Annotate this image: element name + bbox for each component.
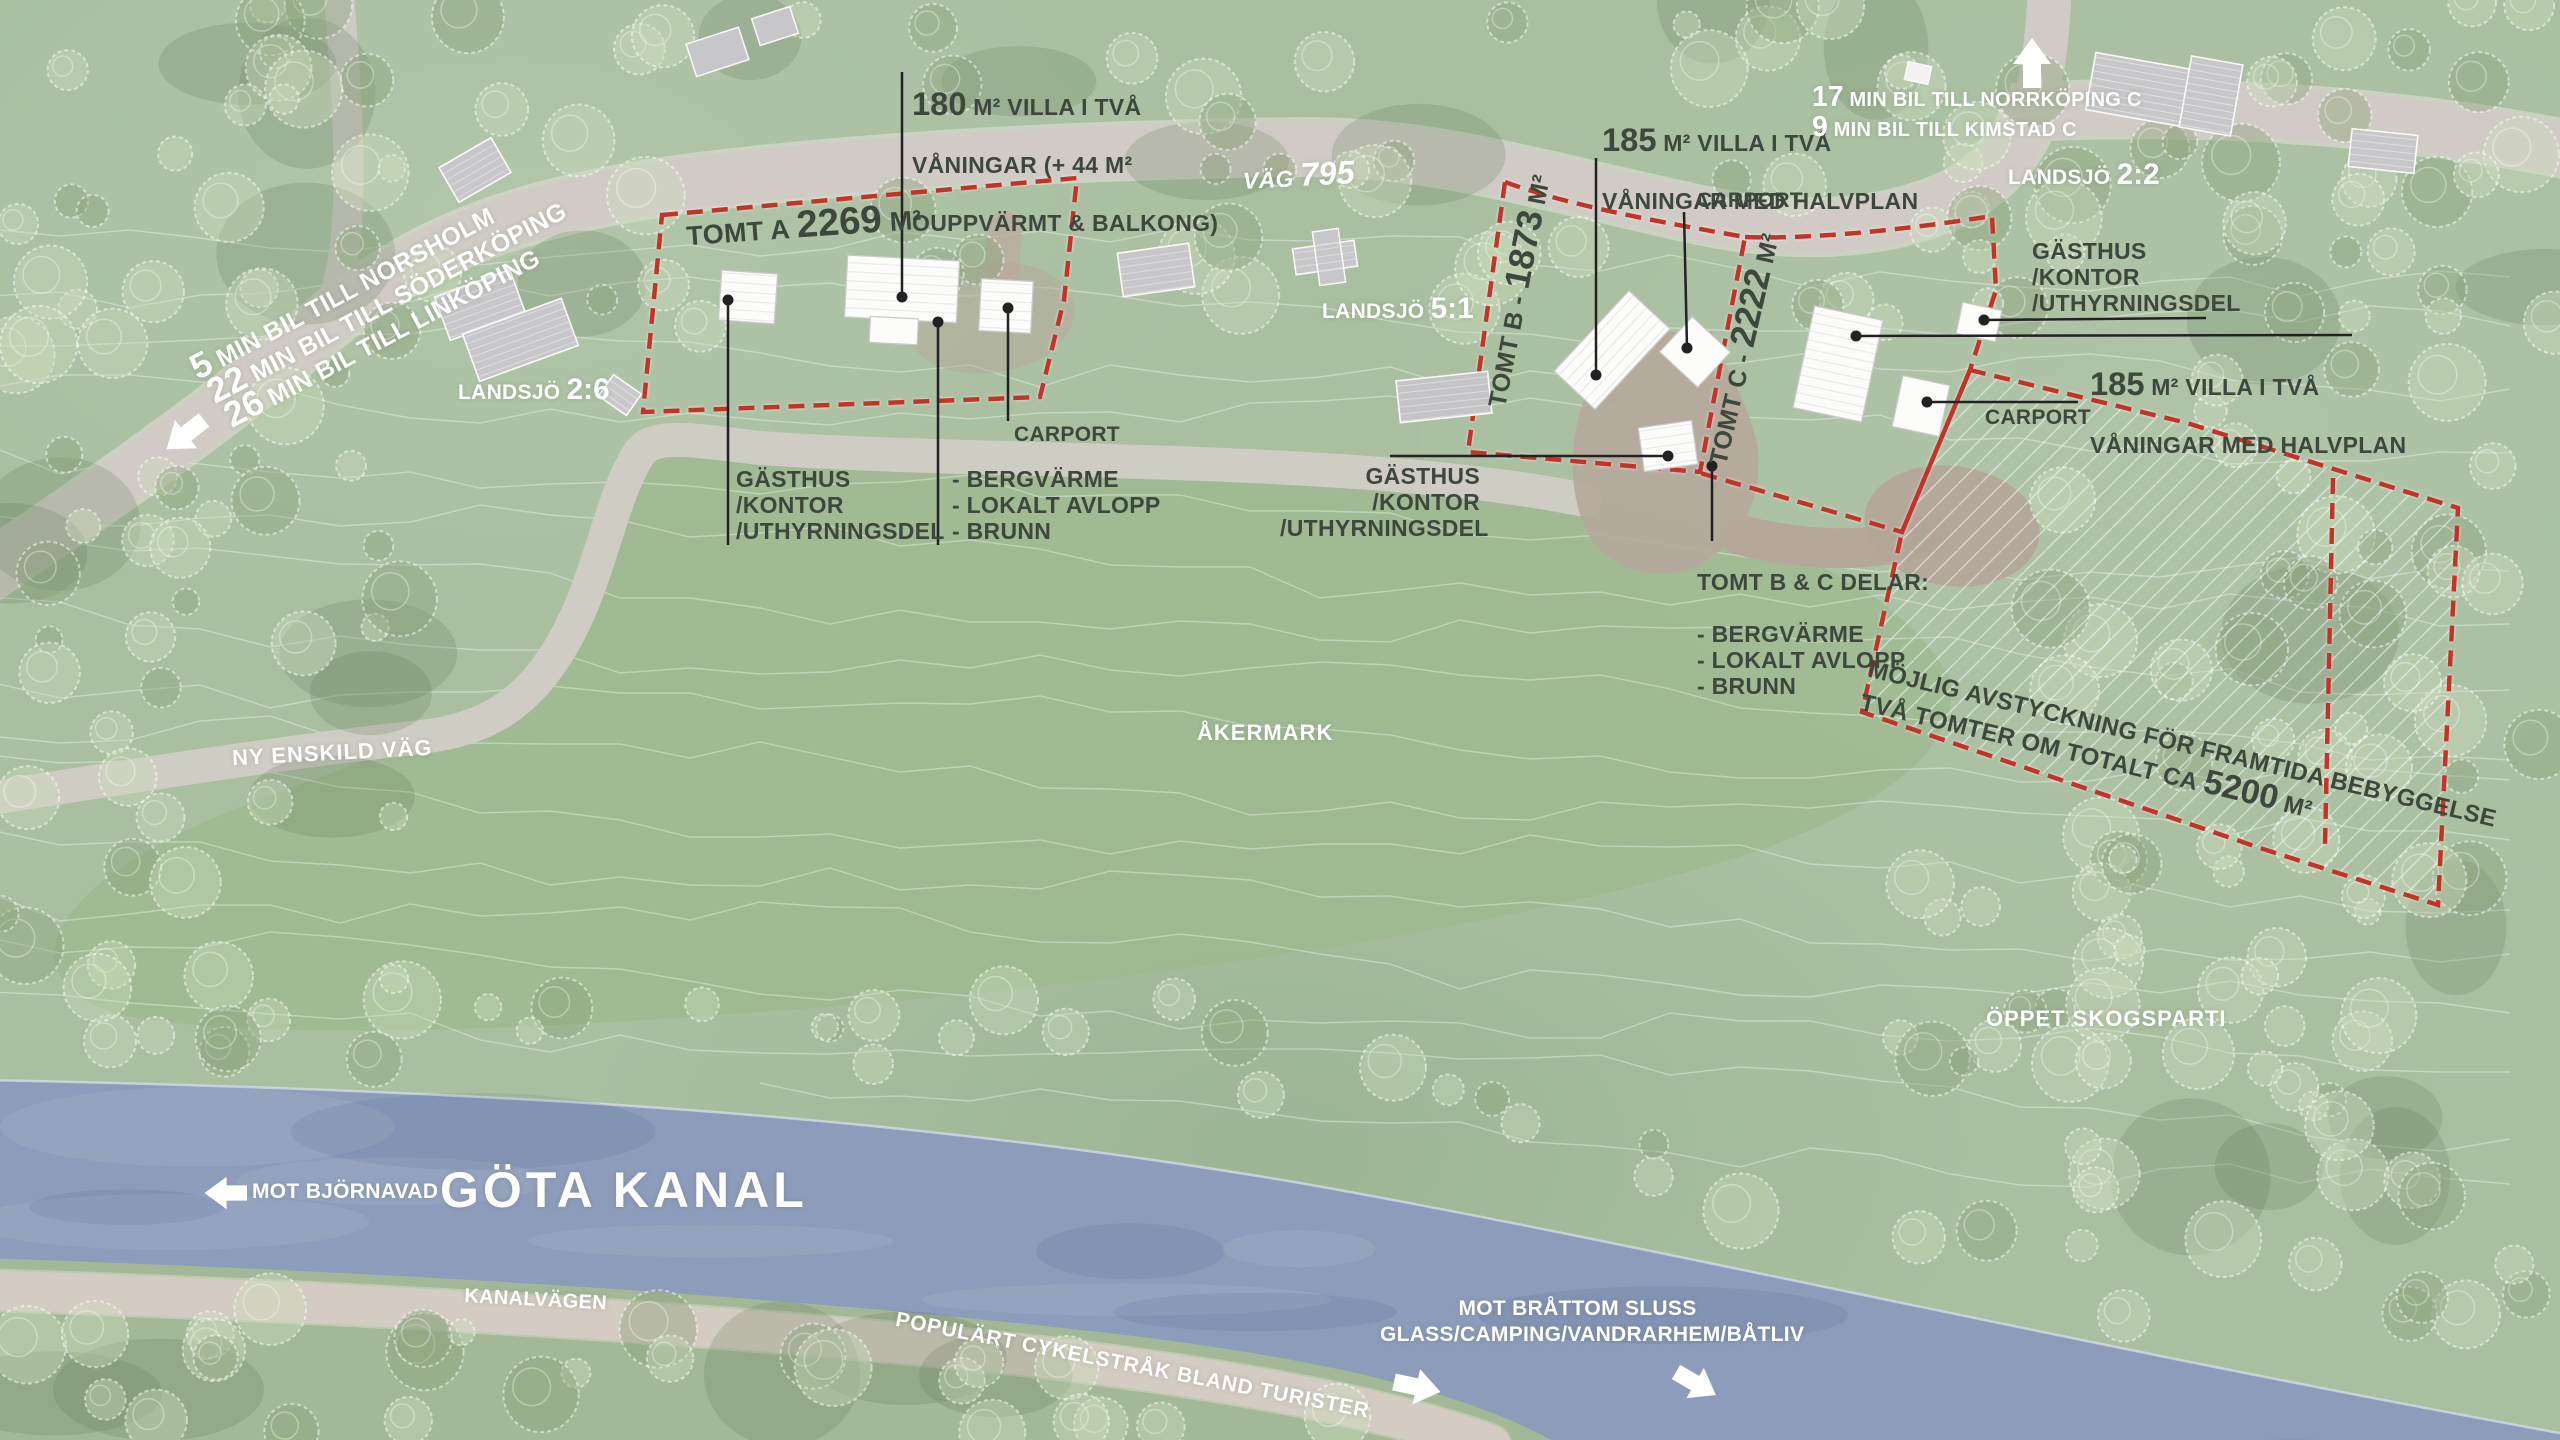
villa-b-size: 185 (1602, 121, 1657, 158)
tree-icon (1950, 1047, 1978, 1075)
tomt-c-unit: M² (1751, 231, 1785, 266)
travel-ne-num1: 17 (1812, 81, 1844, 113)
landsjo22-number: 2:2 (2117, 158, 2160, 191)
site-plan: 180 M² VILLA I TVÅ VÅNINGAR (+ 44 M² OUP… (0, 0, 2560, 1440)
landsjo22-name: LANDSJÖ (2008, 166, 2110, 189)
water-ripple (29, 1189, 224, 1224)
tree-icon (2066, 1230, 2097, 1261)
parcel-landsjo-2-2-label: LANDSJÖ 2:2 (2008, 158, 2160, 192)
tree-icon (2265, 1006, 2305, 1046)
tomt-a-unit: M² (889, 205, 923, 237)
water-ripple (1036, 1223, 1224, 1279)
tree-icon (66, 509, 100, 543)
tree-icon (853, 1044, 893, 1084)
villa-c-label: 185 M² VILLA I TVÅ VÅNINGAR MED HALVPLAN (2090, 340, 2406, 489)
tree-icon (1634, 1157, 1672, 1195)
road-vag795-label: VÄG 795 (1240, 127, 1355, 196)
utilities-a-label: - BERGVÄRME - LOKALT AVLOPP - BRUNN (952, 466, 1161, 544)
villa-c-size: 185 (2090, 365, 2145, 402)
tomt-a-prefix: TOMT A (685, 214, 790, 251)
tree-icon (46, 437, 82, 473)
water-ripple (291, 1093, 656, 1170)
area-skogsparti-label: ÖPPET SKOGSPARTI (1986, 1006, 2227, 1031)
tree-icon (2241, 958, 2278, 995)
tree-icon (2248, 1052, 2282, 1086)
water-ripple (528, 1224, 893, 1257)
villa-a-size: 180 (912, 85, 967, 122)
tree-icon (158, 137, 192, 171)
villa-c-line2: VÅNINGAR MED HALVPLAN (2090, 431, 2406, 460)
tree-icon (939, 1020, 974, 1055)
landsjo51-number: 5:1 (1431, 292, 1474, 325)
villa-a-line2: VÅNINGAR (+ 44 M² (912, 151, 1218, 180)
travel-ne-rest2: MIN BIL TILL KIMSTAD C (1828, 119, 2077, 141)
canal-name-label: GÖTA KANAL (440, 1162, 808, 1219)
travel-ne-num2: 9 (1812, 111, 1828, 143)
parcel-landsjo-5-1-label: LANDSJÖ 5:1 (1322, 292, 1474, 326)
villa-c-rest1: M² VILLA I TVÅ (2145, 374, 2320, 400)
tree-icon (0, 204, 38, 244)
tree-icon (475, 994, 501, 1020)
tree-icon (380, 965, 408, 993)
tree-icon (2445, 759, 2479, 793)
tree-icon (2065, 1128, 2101, 1164)
canal-east-label: MOT BRÅTTOM SLUSS GLASS/CAMPING/VANDRARH… (1380, 1296, 1775, 1348)
tree-icon (1963, 240, 1996, 273)
tree-icon (2109, 846, 2137, 874)
guesthouse-a-label: GÄSTHUS /KONTOR /UTHYRNINGSDEL (736, 466, 945, 544)
vag795-number: 795 (1299, 153, 1355, 193)
water-ripple (922, 1284, 1332, 1316)
tomt-b-unit: M² (1523, 172, 1556, 207)
tree-icon (1433, 1074, 1464, 1105)
tree-icon (269, 84, 298, 113)
villa-a-rest1: M² VILLA I TVÅ (967, 94, 1142, 120)
parcel-landsjo-2-6-label: LANDSJÖ 2:6 (458, 373, 610, 407)
tree-icon (2339, 301, 2370, 332)
carport-c-label: CARPORT (1985, 406, 2091, 430)
tree-icon (2495, 1245, 2533, 1283)
landsjo26-name: LANDSJÖ (458, 381, 560, 404)
tree-icon (2330, 237, 2361, 268)
tree-icon (137, 1017, 174, 1054)
area-akermark-label: ÅKERMARK (1197, 720, 1333, 745)
tree-icon (77, 195, 109, 227)
utilities-bc-title: TOMT B & C DELAR: (1697, 569, 1929, 595)
tree-icon (141, 668, 181, 708)
tree-icon (1475, 1082, 1509, 1116)
tree-icon (385, 1397, 432, 1440)
landsjo51-name: LANDSJÖ (1322, 300, 1424, 323)
travel-ne-line2: 9 MIN BIL TILL KIMSTAD C (1812, 114, 2142, 144)
carport-c (1892, 376, 1950, 437)
tomt-a-area: 2269 (795, 198, 883, 247)
water-ripple (1222, 1231, 1376, 1268)
tree-icon (173, 589, 199, 615)
tree-icon (2426, 298, 2462, 334)
landsjo26-number: 2:6 (567, 373, 610, 406)
villa-a-line1: 180 M² VILLA I TVÅ (912, 89, 1218, 122)
tree-icon (587, 285, 617, 315)
travel-ne-rest1: MIN BIL TILL NORRKÖPING C (1844, 89, 2142, 111)
canal-west-label: MOT BJÖRNAVAD (252, 1180, 438, 1204)
travel-ne-line1: 17 MIN BIL TILL NORRKÖPING C (1812, 84, 2142, 114)
villa-a-line3: OUPPVÄRMT & BALKONG) (912, 209, 1218, 238)
guesthouse-b-label: GÄSTHUS /KONTOR /UTHYRNINGSDEL (1280, 463, 1480, 541)
travel-northeast-label: 17 MIN BIL TILL NORRKÖPING C 9 MIN BIL T… (1812, 84, 2142, 144)
tree-icon (812, 1014, 838, 1040)
guesthouse-c-label: GÄSTHUS /KONTOR /UTHYRNINGSDEL (2032, 238, 2241, 316)
villa-b-rest1: M² VILLA I TVÅ (1657, 130, 1832, 156)
tree-icon (1640, 1130, 1669, 1159)
tree-icon (1961, 887, 2000, 926)
villa-c-line1: 185 M² VILLA I TVÅ (2090, 369, 2406, 402)
vag795-name: VÄG (1242, 165, 1294, 194)
guesthouse-b (1638, 420, 1698, 471)
tree-icon (517, 1017, 543, 1043)
carport-a-label: CARPORT (1014, 423, 1120, 447)
tree-icon (336, 451, 366, 481)
tree-icon (364, 531, 393, 560)
tree-icon (685, 988, 719, 1022)
tree-icon (1137, 1402, 1185, 1440)
tree-icon (1501, 1104, 1539, 1142)
tree-icon (2114, 935, 2144, 965)
tree-icon (380, 803, 407, 830)
future-line2-unit: M² (2281, 791, 2315, 824)
tree-icon (432, 0, 504, 53)
villa-a-label: 180 M² VILLA I TVÅ VÅNINGAR (+ 44 M² OUP… (912, 60, 1218, 267)
tree-icon (0, 1306, 66, 1383)
